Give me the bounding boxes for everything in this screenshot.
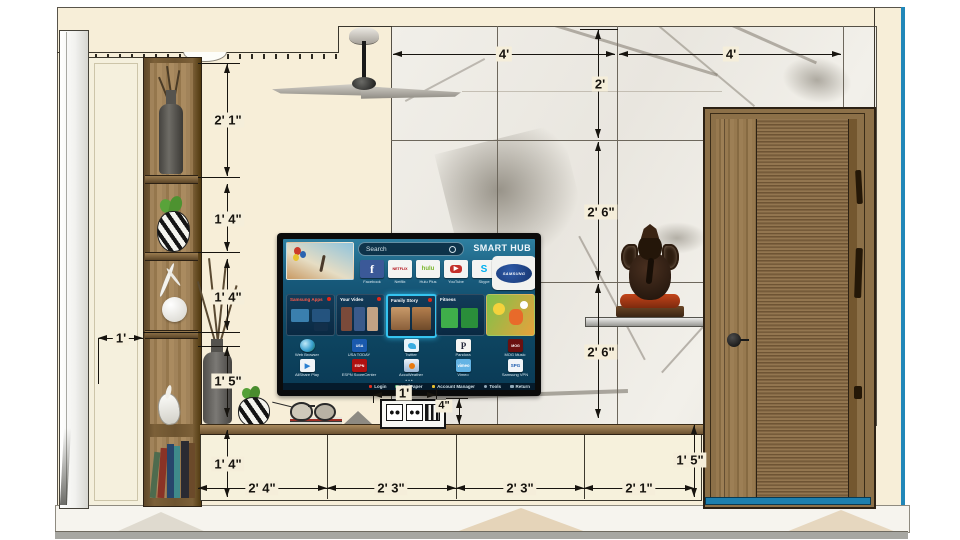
app-icon-web-browser xyxy=(300,339,315,352)
login-icon xyxy=(369,385,373,389)
door-knob xyxy=(727,333,741,347)
extension-line xyxy=(198,63,240,64)
dimension-line xyxy=(459,399,460,424)
card-your-video: Your Video xyxy=(336,294,385,336)
app-icon-mog: MOG xyxy=(508,339,523,352)
dimension-label: 2' 4" xyxy=(245,481,278,496)
smart-hub-logo: SMART HUB xyxy=(463,243,531,253)
door-hinge-mark xyxy=(854,386,862,399)
book-spine xyxy=(181,441,189,498)
notification-dot xyxy=(327,297,331,301)
app-icon-label: Pandora xyxy=(439,353,487,357)
dimension-label: 1' xyxy=(396,386,412,401)
marble-vein xyxy=(639,26,755,107)
power-socket xyxy=(406,404,423,421)
dimension-label: 2' 3" xyxy=(503,481,536,496)
app-icon-label: Web Browser xyxy=(283,353,331,357)
notification-dot xyxy=(377,297,381,301)
door-leaf-fluted-panel xyxy=(757,119,848,499)
card-family-story: Family Story xyxy=(386,294,437,338)
app-icon-label: Samsung VPN xyxy=(491,373,535,377)
dimension-label: 4' xyxy=(723,47,739,62)
door-threshold xyxy=(705,497,871,505)
return-arrow-icon xyxy=(510,385,514,389)
footer-item-return: Return xyxy=(510,384,530,389)
app-icon-label: AccuWeather xyxy=(387,373,435,377)
extension-line xyxy=(143,332,240,333)
bottle-vase xyxy=(159,104,183,174)
extension-line xyxy=(198,346,240,347)
dimension-label: 4' xyxy=(496,47,512,62)
app-icon-label: MOG Music xyxy=(491,353,535,357)
app-icon-label: Vimeo xyxy=(439,373,487,377)
dimension-label: 2' 1" xyxy=(622,481,655,496)
samsung-logo-tile: SAMSUNG xyxy=(492,256,535,290)
book-spine xyxy=(189,443,195,498)
dimension-label: 1' 4" xyxy=(211,212,244,227)
app-icon-twitter xyxy=(404,339,419,352)
app-icon-espn: ESPN xyxy=(352,359,367,372)
netflix-icon: NETFLIX xyxy=(393,267,408,271)
account-manager-icon xyxy=(432,385,436,389)
tools-gear-icon xyxy=(484,385,488,389)
magnifier-icon xyxy=(449,246,456,253)
dimension-label: 1' 4" xyxy=(211,457,244,472)
samsung-oval-logo: SAMSUNG xyxy=(496,264,532,283)
dimension-label: 2' 3" xyxy=(374,481,407,496)
fan-down-rod xyxy=(362,41,366,81)
app-tile-facebook: f xyxy=(360,260,384,278)
card-samsung-apps: Samsung Apps xyxy=(286,294,335,336)
section-cut-line-blue xyxy=(901,7,905,505)
extension-line xyxy=(198,177,240,178)
display-shelf xyxy=(585,317,714,327)
dimension-label: 1' 4" xyxy=(211,290,244,305)
sphere-ornament xyxy=(162,297,187,322)
ceiling-step-line xyxy=(338,26,339,53)
shelf-rail-2 xyxy=(145,252,198,261)
tv-search-bar: Search xyxy=(358,242,464,256)
dimension-label: 2' 6" xyxy=(584,345,617,360)
app-icon-pandora: P xyxy=(456,339,471,352)
eyeglasses-bridge xyxy=(308,405,315,407)
dimension-label: 2' xyxy=(592,77,608,92)
tv-screen: Search SMART HUB f NETFLIX hulu ▶ S Face… xyxy=(283,239,535,390)
accuweather-sun-icon xyxy=(409,363,415,369)
power-socket xyxy=(386,404,403,421)
door-leaf-stile-groove xyxy=(724,119,725,499)
floor-vein xyxy=(116,512,206,532)
featured-photo-tile xyxy=(286,242,354,280)
striped-planter xyxy=(157,211,190,252)
app-icon-label: AllShare Play xyxy=(283,373,331,377)
facebook-icon: f xyxy=(370,262,374,277)
dimension-label: 4" xyxy=(435,400,452,413)
footer-item-tools: Tools xyxy=(484,384,501,389)
app-icon-usa-today: USA xyxy=(352,339,367,352)
shelf-rail-1 xyxy=(145,175,198,184)
app-icon-allshare: ▶ xyxy=(300,359,315,372)
marble-vein xyxy=(697,26,817,64)
door-leaf-left-stile xyxy=(716,119,757,499)
elevation-drawing: Search SMART HUB f NETFLIX hulu ▶ S Face… xyxy=(0,0,960,540)
fan-motor-hub xyxy=(352,77,376,90)
card-fitness: Fitness xyxy=(436,294,485,336)
dimension-label: 1' 5" xyxy=(211,374,244,389)
footer-item-login: Login xyxy=(369,384,387,389)
floor-vein xyxy=(456,508,586,532)
extension-line xyxy=(198,252,240,253)
dimension-label: 2' 6" xyxy=(584,205,617,220)
eyeglasses-lens xyxy=(314,403,336,421)
app-icon-label: USA TODAY xyxy=(335,353,383,357)
dimension-label: 2' 1" xyxy=(211,113,244,128)
twitter-bird-icon xyxy=(408,343,416,349)
floor-vein xyxy=(786,510,896,532)
dimension-label: 1' 5" xyxy=(673,453,706,468)
app-icon-label: ESPN ScoreCenter xyxy=(335,373,383,377)
marble-joint-vertical xyxy=(617,26,618,424)
footer-item-account-manager: Account Manager xyxy=(432,384,475,389)
side-panel-inset xyxy=(94,63,138,501)
floor-plinth-band xyxy=(55,531,908,539)
swirl-pot xyxy=(238,397,270,427)
app-icon-label: Twitter xyxy=(387,353,435,357)
floor-marble-band xyxy=(55,505,910,533)
hulu-icon: hulu xyxy=(422,266,435,272)
samsung-logo-text: SAMSUNG xyxy=(503,271,526,276)
app-tile-youtube: ▶ xyxy=(444,260,468,278)
book-spine xyxy=(174,446,180,498)
notification-dot xyxy=(428,298,432,302)
skype-icon: S xyxy=(481,264,488,275)
countertop xyxy=(200,424,705,435)
app-icon-accuweather xyxy=(404,359,419,372)
extension-line xyxy=(98,338,99,384)
card-kids xyxy=(486,294,535,336)
youtube-icon: ▶ xyxy=(450,265,463,273)
book-spine xyxy=(167,444,174,498)
tv-search-text: Search xyxy=(359,246,463,253)
dimension-label: 1' xyxy=(113,331,129,346)
door-knob-pin xyxy=(740,339,749,341)
app-icon-vimeo: vimeo xyxy=(456,359,471,372)
app-tile-hulu: hulu xyxy=(416,260,440,278)
app-icon-spg: SPG xyxy=(508,359,523,372)
app-tile-netflix: NETFLIX xyxy=(388,260,412,278)
